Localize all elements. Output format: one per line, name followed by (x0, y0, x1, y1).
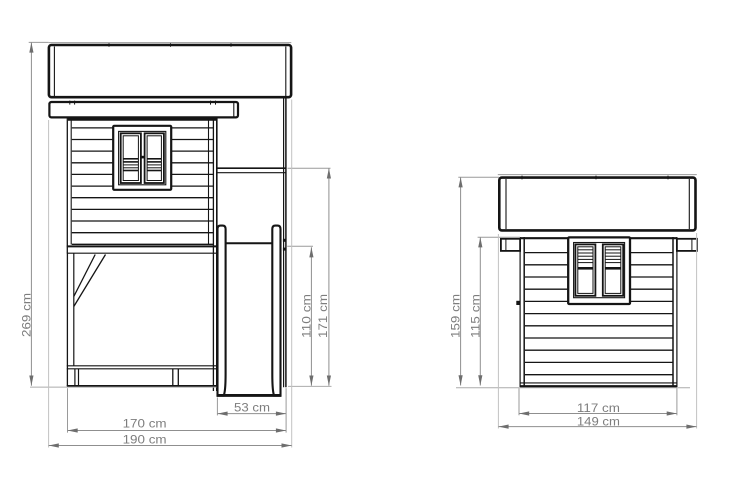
svg-text:53 cm: 53 cm (234, 401, 270, 415)
svg-text:159 cm: 159 cm (449, 294, 463, 338)
svg-text:171 cm: 171 cm (316, 294, 330, 338)
svg-text:117 cm: 117 cm (577, 401, 620, 415)
svg-text:170 cm: 170 cm (123, 416, 167, 430)
svg-text:190 cm: 190 cm (123, 432, 167, 446)
svg-text:110 cm: 110 cm (299, 294, 313, 338)
svg-text:149 cm: 149 cm (577, 415, 620, 429)
svg-text:115 cm: 115 cm (468, 294, 482, 338)
svg-text:269 cm: 269 cm (20, 293, 34, 337)
